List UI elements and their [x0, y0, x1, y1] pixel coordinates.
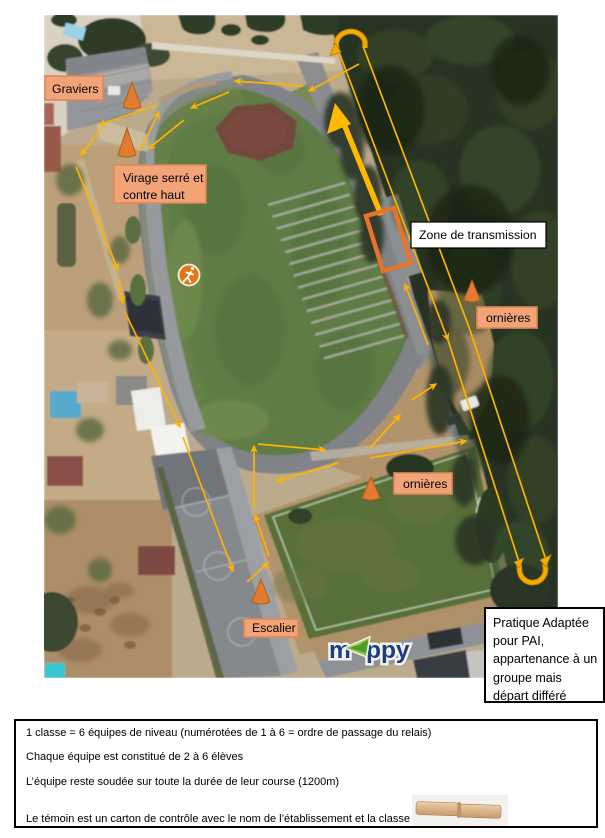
svg-text:Zone de transmission: Zone de transmission — [419, 228, 537, 242]
svg-text:m: m — [329, 637, 351, 664]
svg-text:Graviers: Graviers — [52, 82, 98, 96]
svg-text:contre haut: contre haut — [123, 188, 185, 202]
svg-text:Escalier: Escalier — [252, 621, 296, 635]
svg-text:ppy: ppy — [366, 637, 410, 664]
svg-text:ornières: ornières — [403, 477, 447, 491]
svg-text:ornières: ornières — [486, 311, 530, 325]
svg-text:Virage serré et: Virage serré et — [123, 171, 204, 185]
